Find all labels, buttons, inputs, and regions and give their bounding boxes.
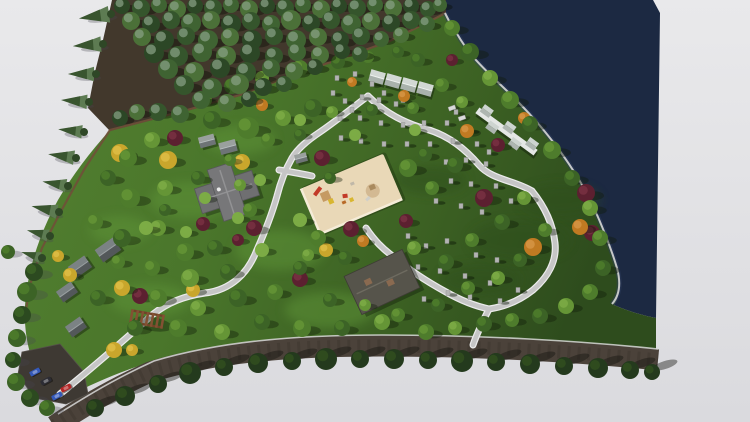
gravestone [445, 239, 449, 244]
gravestone [379, 121, 383, 126]
gravestone [350, 108, 354, 113]
gravestone [353, 72, 357, 77]
gravestone [343, 99, 347, 104]
gravestone [494, 184, 498, 189]
gravestone [509, 199, 513, 204]
gravestone [475, 142, 479, 147]
gravestone [484, 162, 488, 167]
gravestone [468, 295, 472, 300]
gravestone [451, 139, 455, 144]
gravestone [394, 102, 398, 107]
gravestone [422, 297, 426, 302]
gravestone [370, 82, 374, 87]
gravestone [487, 150, 491, 155]
gravestone [406, 234, 410, 239]
gravestone [382, 91, 386, 96]
gravestone [428, 142, 432, 147]
gravestone [488, 281, 492, 286]
gravestone [498, 299, 502, 304]
gravestone [445, 121, 449, 126]
gravestone [480, 210, 484, 215]
gravestone [464, 158, 468, 163]
aerial-site-plan-render [0, 0, 750, 422]
gravestone [449, 179, 453, 184]
gravestone [495, 258, 499, 263]
gravestone [401, 123, 405, 128]
play-equipment [342, 194, 348, 199]
gravestone [377, 98, 381, 103]
gravestone [459, 204, 463, 209]
gravestone [454, 110, 458, 115]
gravestone [331, 91, 335, 96]
gravestone [339, 136, 343, 141]
gravestone [335, 76, 339, 81]
gravestone [422, 121, 426, 126]
gravestone [382, 142, 386, 147]
gravestone [416, 265, 420, 270]
gravestone [516, 288, 520, 293]
gravestone [358, 116, 362, 121]
gravestone [469, 182, 473, 187]
gravestone [463, 274, 467, 279]
gravestone [434, 199, 438, 204]
gravestone [446, 291, 450, 296]
gravestone [405, 142, 409, 147]
gravestone [360, 95, 364, 100]
scene-canvas [0, 0, 750, 422]
gravestone [438, 269, 442, 274]
gravestone [474, 253, 478, 258]
